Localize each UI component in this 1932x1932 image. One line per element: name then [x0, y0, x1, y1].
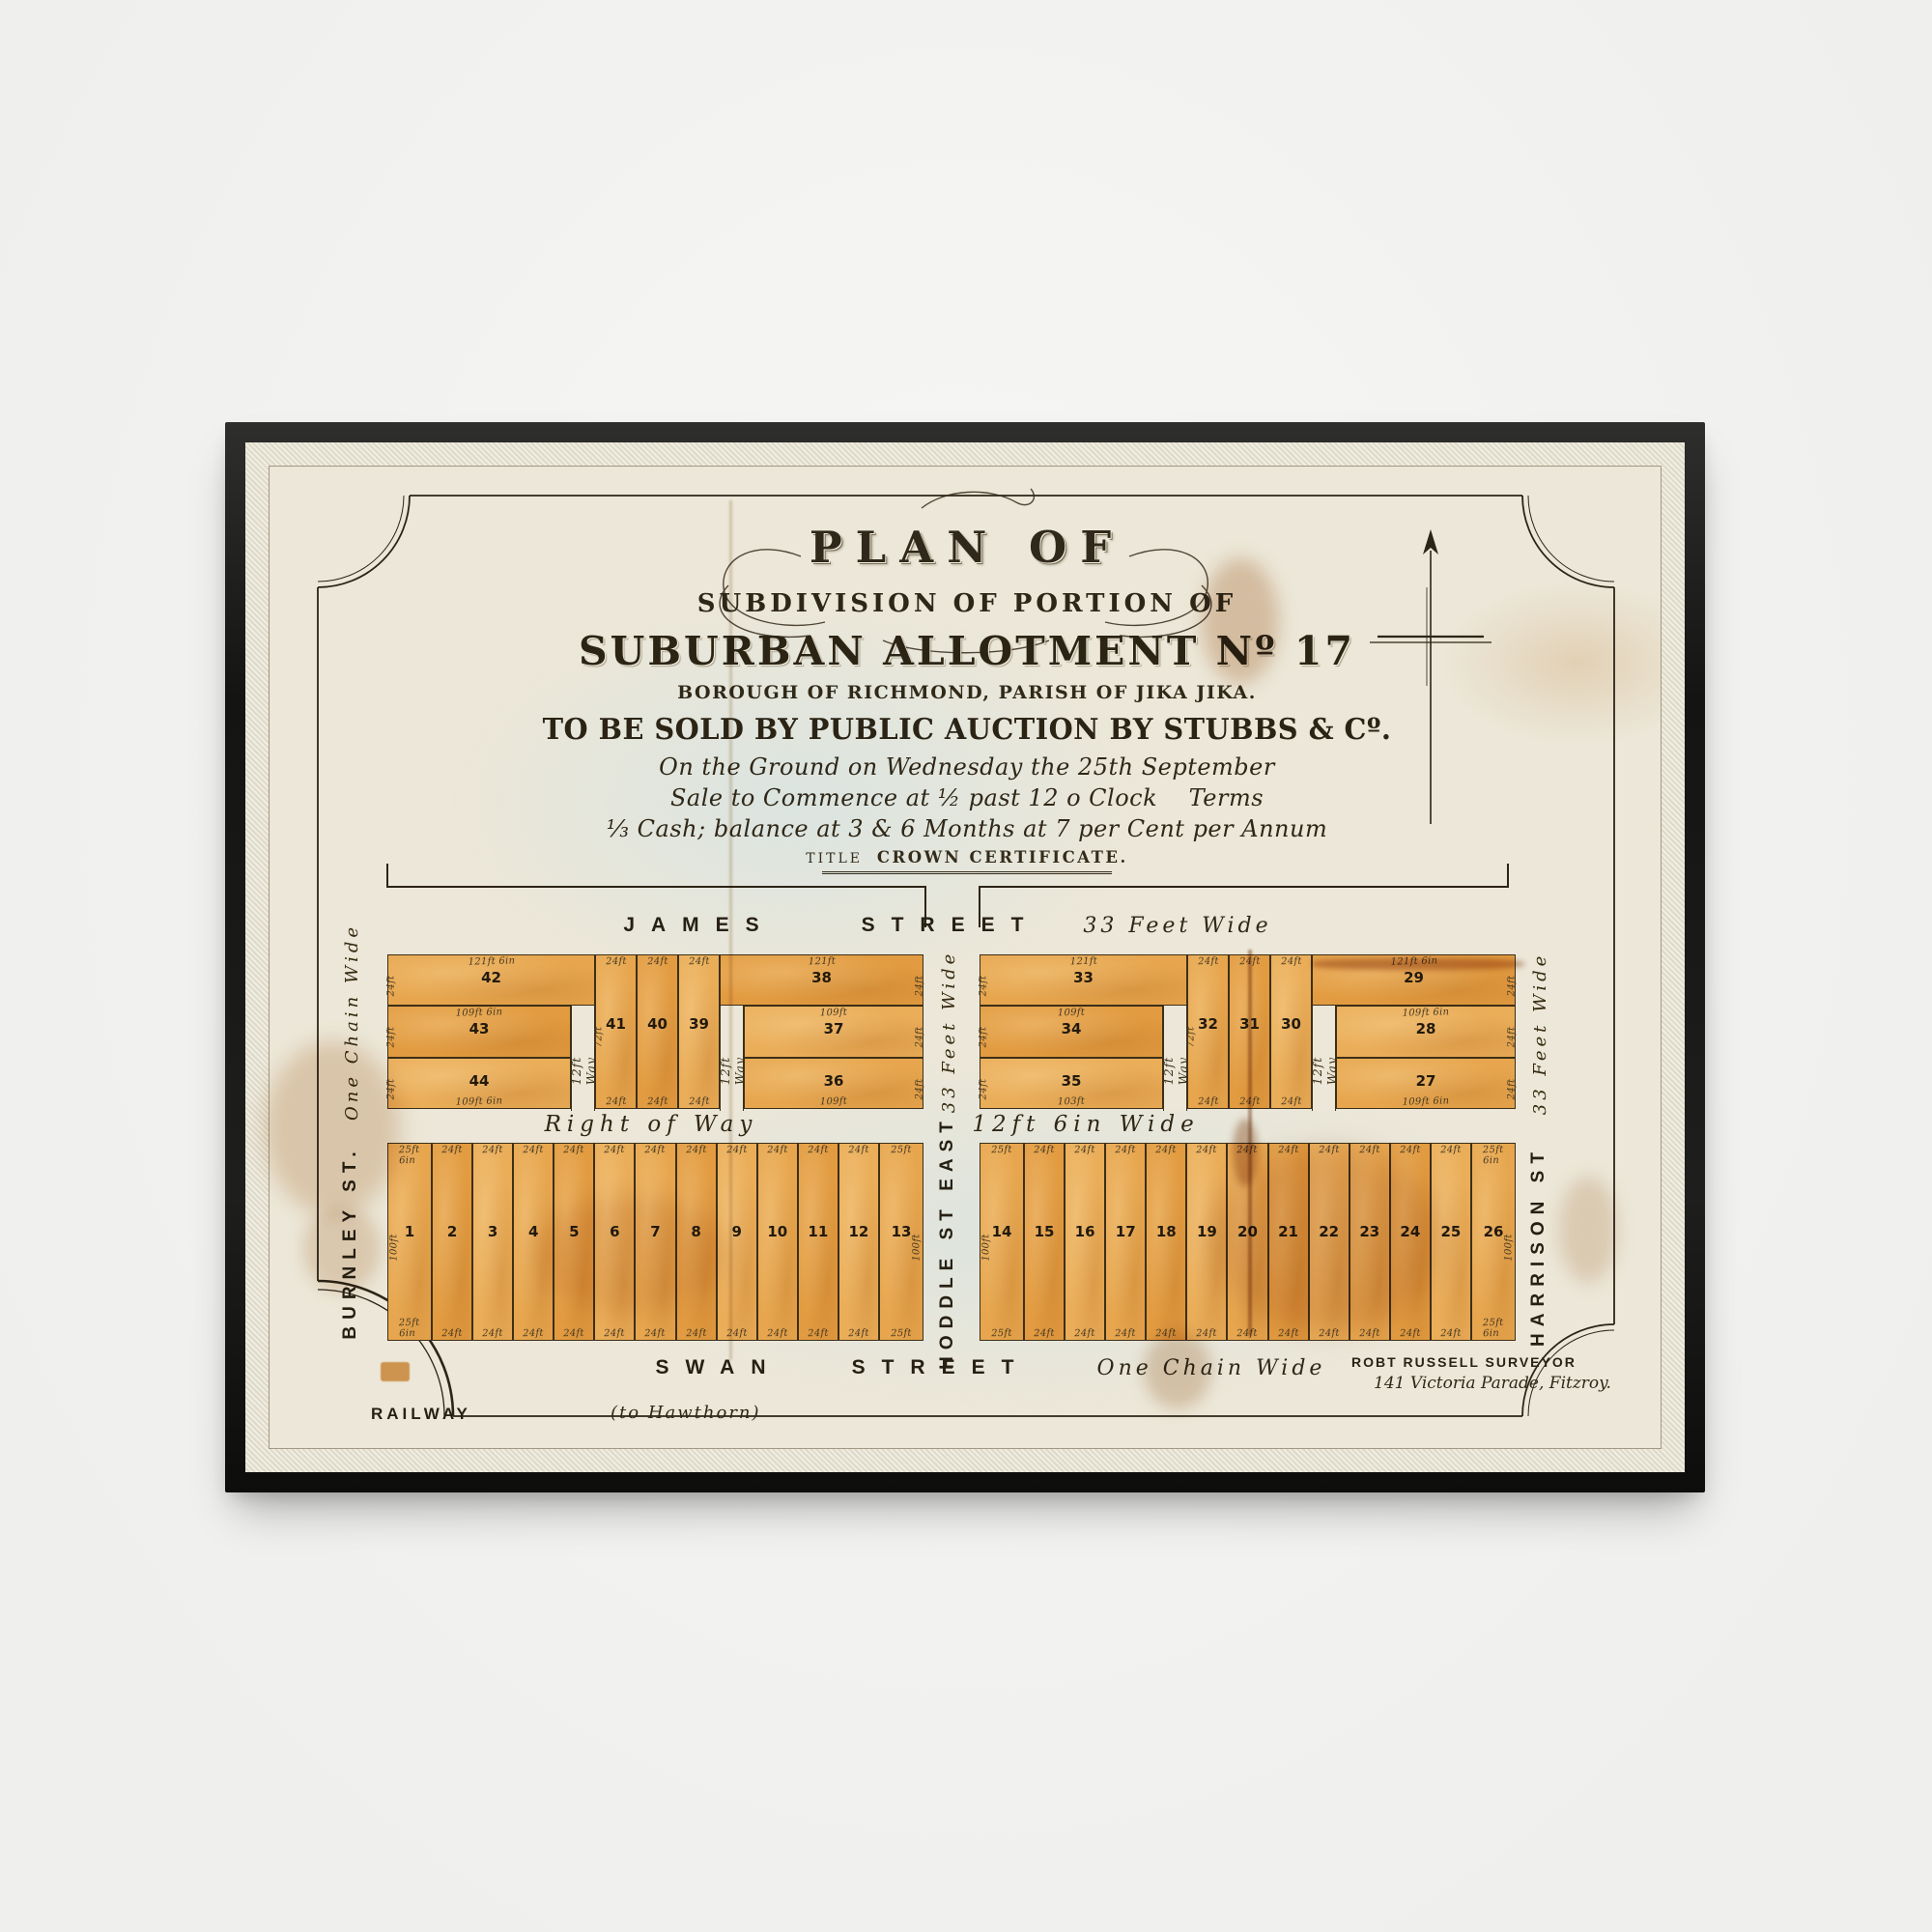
- lot-number: 34: [980, 1020, 1162, 1037]
- lot-dim: 24ft: [1319, 1145, 1340, 1156]
- lot-dim: 103ft: [1058, 1096, 1086, 1108]
- lot-17: 1724ft24ft: [1105, 1143, 1146, 1341]
- lot-27: 27109ft 6in24ft: [1336, 1058, 1516, 1109]
- lot-dim: 24ft: [606, 956, 627, 968]
- lot-39: 3924ft24ft: [678, 954, 720, 1109]
- lot-dim: 109ft: [820, 1096, 848, 1108]
- lot-number: 7: [636, 1223, 674, 1240]
- lot-dim: 24ft: [1440, 1145, 1462, 1156]
- lot-dim: 24ft: [647, 1096, 668, 1108]
- lot-number: 2: [433, 1223, 471, 1240]
- lot-35: 35103ft24ft: [980, 1058, 1163, 1109]
- lot-number: 37: [745, 1020, 923, 1037]
- lot-dim: 24ft: [604, 1145, 625, 1156]
- lot-30: 3024ft24ft: [1270, 954, 1312, 1109]
- lot-dim: 24ft: [1074, 1145, 1095, 1156]
- lot-dim: 24ft: [767, 1328, 788, 1340]
- right-of-way-strip: 12ft Way: [1312, 1006, 1336, 1111]
- lot-15: 1524ft24ft: [1024, 1143, 1065, 1341]
- lot-26: 2625ft 6in25ft 6in100ft: [1471, 1143, 1516, 1341]
- lot-number: 9: [718, 1223, 756, 1240]
- lot-dim: 24ft: [848, 1145, 869, 1156]
- lot-12: 1224ft24ft: [838, 1143, 879, 1341]
- lot-dim: 24ft: [441, 1328, 463, 1340]
- lot-42: 42121ft 6in24ft: [387, 954, 595, 1006]
- lot-dim: 24ft: [1281, 956, 1302, 968]
- lot-dim: 24ft: [1359, 1328, 1380, 1340]
- lot-number: 35: [980, 1072, 1162, 1090]
- lot-5: 524ft24ft: [554, 1143, 594, 1341]
- lot-dim: 24ft: [689, 956, 710, 968]
- lot-31: 3124ft24ft: [1229, 954, 1270, 1109]
- lot-dim: 24ft: [1196, 1328, 1217, 1340]
- lot-43: 43109ft 6in24ft: [387, 1006, 571, 1058]
- lot-number: 5: [554, 1223, 593, 1240]
- lot-number: 39: [679, 1015, 719, 1033]
- lot-dim: 24ft: [1507, 1027, 1518, 1048]
- lot-number: 18: [1147, 1223, 1185, 1240]
- lot-dim: 25ft: [991, 1328, 1012, 1340]
- lot-6: 624ft24ft: [594, 1143, 635, 1341]
- lot-number: 33: [980, 969, 1186, 986]
- lot-dim: 24ft: [1239, 1096, 1261, 1108]
- lot-1: 125ft 6in25ft 6in100ft: [387, 1143, 432, 1341]
- right-of-way-strip: 12ft Way: [720, 1006, 744, 1111]
- lot-dim: 24ft: [808, 1145, 829, 1156]
- lot-dim: 24ft: [482, 1328, 503, 1340]
- lot-dim: 24ft: [1196, 1145, 1217, 1156]
- lot-dim: 109ft: [1058, 1008, 1086, 1019]
- lot-number: 16: [1065, 1223, 1104, 1240]
- lot-number: 20: [1228, 1223, 1266, 1240]
- lot-14: 1425ft25ft100ft: [980, 1143, 1024, 1341]
- lot-dim: 24ft: [1507, 1078, 1518, 1099]
- lot-dim: 24ft: [385, 1078, 396, 1099]
- lot-dim: 24ft: [978, 975, 988, 996]
- lot-dim: 24ft: [1507, 975, 1518, 996]
- lot-dim: 24ft: [385, 975, 396, 996]
- lot-dim: 24ft: [978, 1027, 988, 1048]
- lot-number: 23: [1350, 1223, 1389, 1240]
- lot-dim: 24ft: [848, 1328, 869, 1340]
- lot-dim: 121ft: [808, 956, 836, 968]
- lot-dim: 24ft: [1281, 1096, 1302, 1108]
- lot-dim: 24ft: [726, 1145, 748, 1156]
- lot-dim: 24ft: [1115, 1145, 1136, 1156]
- lot-number: 44: [388, 1072, 570, 1090]
- lot-dim: 100ft: [911, 1234, 922, 1261]
- lot-dim: 24ft: [1319, 1328, 1340, 1340]
- lot-number: 29: [1313, 969, 1515, 986]
- right-of-way-strip: 12ft Way: [571, 1006, 595, 1111]
- lot-dim: 121ft: [1069, 956, 1097, 968]
- lot-dim: 24ft: [1278, 1328, 1299, 1340]
- lot-dim: 24ft: [606, 1096, 627, 1108]
- lot-dim: 24ft: [1400, 1145, 1421, 1156]
- lot-number: 19: [1187, 1223, 1226, 1240]
- lot-dim: 24ft: [645, 1328, 667, 1340]
- way-label: 12ft Way: [718, 1032, 747, 1085]
- lot-dim: 25ft: [991, 1145, 1012, 1156]
- lot-19: 1924ft24ft: [1186, 1143, 1227, 1341]
- lot-2: 224ft24ft: [432, 1143, 472, 1341]
- lot-dim: 72ft: [593, 1027, 604, 1048]
- lot-number: 21: [1269, 1223, 1308, 1240]
- lot-dim: 24ft: [1278, 1145, 1299, 1156]
- lot-32: 3224ft24ft72ft: [1187, 954, 1229, 1109]
- lot-dim: 24ft: [1074, 1328, 1095, 1340]
- lot-24: 2424ft24ft: [1390, 1143, 1431, 1341]
- lot-dim: 24ft: [1359, 1145, 1380, 1156]
- lot-16: 1624ft24ft: [1065, 1143, 1105, 1341]
- lot-dim: 121ft 6in: [468, 955, 515, 967]
- lot-dim: 24ft: [978, 1078, 988, 1099]
- lot-dim: 24ft: [1237, 1328, 1259, 1340]
- lot-dim: 24ft: [1034, 1145, 1055, 1156]
- lot-28: 28109ft 6in24ft: [1336, 1006, 1516, 1058]
- lot-7: 724ft24ft: [635, 1143, 675, 1341]
- lot-number: 40: [638, 1015, 677, 1033]
- lot-21: 2124ft24ft: [1268, 1143, 1309, 1341]
- lot-38: 38121ft24ft: [720, 954, 923, 1006]
- lot-dim: 24ft: [523, 1145, 544, 1156]
- lot-dim: 24ft: [1237, 1145, 1259, 1156]
- lot-dim: 24ft: [482, 1145, 503, 1156]
- lot-dim: 109ft 6in: [456, 1095, 503, 1107]
- lot-number: 30: [1271, 1015, 1311, 1033]
- lot-dim: 100ft: [389, 1234, 400, 1261]
- lot-dim: 24ft: [726, 1328, 748, 1340]
- lot-number: 22: [1310, 1223, 1349, 1240]
- lot-dim: 109ft 6in: [1403, 1007, 1450, 1018]
- lot-dim: 24ft: [645, 1145, 667, 1156]
- lot-8: 824ft24ft: [676, 1143, 717, 1341]
- lot-dim: 24ft: [689, 1096, 710, 1108]
- right-of-way-strip: 12ft Way: [1163, 1006, 1187, 1111]
- lot-number: 11: [799, 1223, 838, 1240]
- lot-dim: 24ft: [767, 1145, 788, 1156]
- lot-number: 10: [758, 1223, 797, 1240]
- lot-40: 4024ft24ft: [637, 954, 678, 1109]
- lot-dim: 100ft: [981, 1234, 992, 1261]
- lot-dim: 24ft: [604, 1328, 625, 1340]
- lot-dim: 25ft 6in: [1483, 1145, 1505, 1167]
- lot-dim: 24ft: [1198, 956, 1219, 968]
- lot-dim: 24ft: [808, 1328, 829, 1340]
- lot-34: 34109ft24ft: [980, 1006, 1163, 1058]
- lot-dim: 24ft: [915, 1027, 925, 1048]
- lot-10: 1024ft24ft: [757, 1143, 798, 1341]
- picture-frame: PLAN OF SUBDIVISION OF PORTION OF SUBURB…: [225, 422, 1705, 1492]
- lot-29: 29121ft 6in24ft: [1312, 954, 1516, 1006]
- lot-3: 324ft24ft: [472, 1143, 513, 1341]
- lot-33: 33121ft24ft: [980, 954, 1187, 1006]
- lot-number: 24: [1391, 1223, 1430, 1240]
- lot-36: 36109ft24ft: [744, 1058, 923, 1109]
- lot-number: 25: [1432, 1223, 1470, 1240]
- lot-dim: 24ft: [1115, 1328, 1136, 1340]
- lot-dim: 24ft: [1155, 1328, 1177, 1340]
- lot-dim: 109ft 6in: [1403, 1095, 1450, 1107]
- lot-number: 42: [388, 969, 594, 986]
- lot-37: 37109ft24ft: [744, 1006, 923, 1058]
- lot-25: 2524ft24ft: [1431, 1143, 1471, 1341]
- lot-number: 36: [745, 1072, 923, 1090]
- lot-dim: 24ft: [915, 1078, 925, 1099]
- lot-dim: 24ft: [523, 1328, 544, 1340]
- way-label: 12ft Way: [1310, 1032, 1339, 1085]
- allotment-blocks: 42121ft 6in24ft43109ft 6in24ft44109ft 6i…: [245, 442, 1685, 1472]
- lot-dim: 121ft 6in: [1390, 955, 1437, 967]
- canvas-mat: PLAN OF SUBDIVISION OF PORTION OF SUBURB…: [245, 442, 1685, 1472]
- lot-dim: 24ft: [647, 956, 668, 968]
- lot-dim: 25ft: [891, 1145, 912, 1156]
- lot-dim: 24ft: [1400, 1328, 1421, 1340]
- lot-number: 28: [1337, 1020, 1515, 1037]
- lot-dim: 24ft: [686, 1145, 707, 1156]
- lot-dim: 24ft: [563, 1328, 584, 1340]
- lot-dim: 25ft 6in: [399, 1318, 421, 1340]
- lot-22: 2224ft24ft: [1309, 1143, 1350, 1341]
- lot-dim: 24ft: [915, 975, 925, 996]
- lot-dim: 24ft: [1034, 1328, 1055, 1340]
- lot-dim: 72ft: [1185, 1027, 1196, 1048]
- lot-18: 1824ft24ft: [1146, 1143, 1186, 1341]
- lot-number: 27: [1337, 1072, 1515, 1090]
- lot-dim: 25ft 6in: [1483, 1318, 1505, 1340]
- lot-number: 43: [388, 1020, 570, 1037]
- lot-dim: 24ft: [385, 1027, 396, 1048]
- lot-23: 2324ft24ft: [1350, 1143, 1390, 1341]
- lot-dim: 24ft: [686, 1328, 707, 1340]
- lot-number: 31: [1230, 1015, 1269, 1033]
- lot-number: 17: [1106, 1223, 1145, 1240]
- lot-11: 1124ft24ft: [798, 1143, 838, 1341]
- lot-dim: 109ft 6in: [456, 1007, 503, 1018]
- lot-9: 924ft24ft: [717, 1143, 757, 1341]
- lot-dim: 24ft: [1198, 1096, 1219, 1108]
- wall-background: PLAN OF SUBDIVISION OF PORTION OF SUBURB…: [0, 0, 1932, 1932]
- lot-dim: 24ft: [1239, 956, 1261, 968]
- lot-dim: 100ft: [1503, 1234, 1514, 1261]
- lot-number: 4: [514, 1223, 553, 1240]
- lot-4: 424ft24ft: [513, 1143, 554, 1341]
- lot-20: 2024ft24ft: [1227, 1143, 1267, 1341]
- lot-13: 1325ft25ft100ft: [879, 1143, 923, 1341]
- lot-number: 12: [839, 1223, 878, 1240]
- lot-dim: 25ft 6in: [399, 1145, 421, 1167]
- lot-number: 38: [721, 969, 923, 986]
- lot-number: 6: [595, 1223, 634, 1240]
- lot-number: 15: [1025, 1223, 1064, 1240]
- lot-44: 44109ft 6in24ft: [387, 1058, 571, 1109]
- lot-dim: 24ft: [563, 1145, 584, 1156]
- lot-dim: 24ft: [1155, 1145, 1177, 1156]
- lot-dim: 109ft: [820, 1008, 848, 1019]
- lot-dim: 25ft: [891, 1328, 912, 1340]
- lot-dim: 24ft: [441, 1145, 463, 1156]
- lot-41: 4124ft24ft72ft: [595, 954, 637, 1109]
- lot-number: 3: [473, 1223, 512, 1240]
- lot-dim: 24ft: [1440, 1328, 1462, 1340]
- lot-number: 8: [677, 1223, 716, 1240]
